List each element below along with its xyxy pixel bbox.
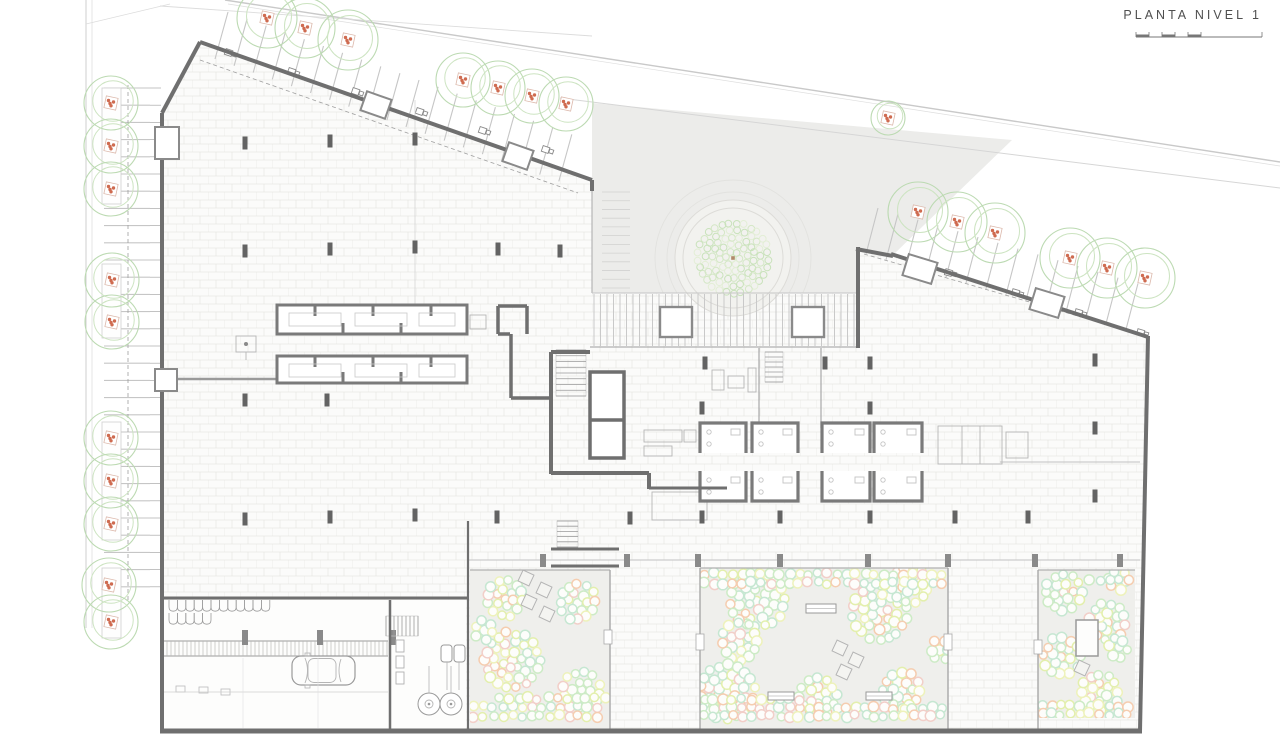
- tree-symbol: [436, 53, 490, 107]
- garden-patio: [468, 570, 611, 730]
- tree-symbol: [505, 69, 559, 123]
- dimension-ticks: [150, 88, 161, 587]
- louver-band: [594, 294, 854, 346]
- scale-bar: [1136, 32, 1262, 37]
- tree-symbol: [1077, 238, 1137, 298]
- garden-patio: [696, 562, 953, 730]
- floor-plan-canvas: PLANTA NIVEL 1: [0, 0, 1280, 753]
- parking-garage: [163, 600, 466, 729]
- plan-title: PLANTA NIVEL 1: [1123, 8, 1262, 22]
- tree-symbol: [539, 77, 593, 131]
- plan-sheet: PLANTA NIVEL 1: [0, 0, 1280, 753]
- tree-symbol: [471, 61, 525, 115]
- plaza-tree-symbol: [675, 200, 791, 316]
- tree-symbol: [1115, 248, 1175, 308]
- garden-patio: [1038, 567, 1135, 719]
